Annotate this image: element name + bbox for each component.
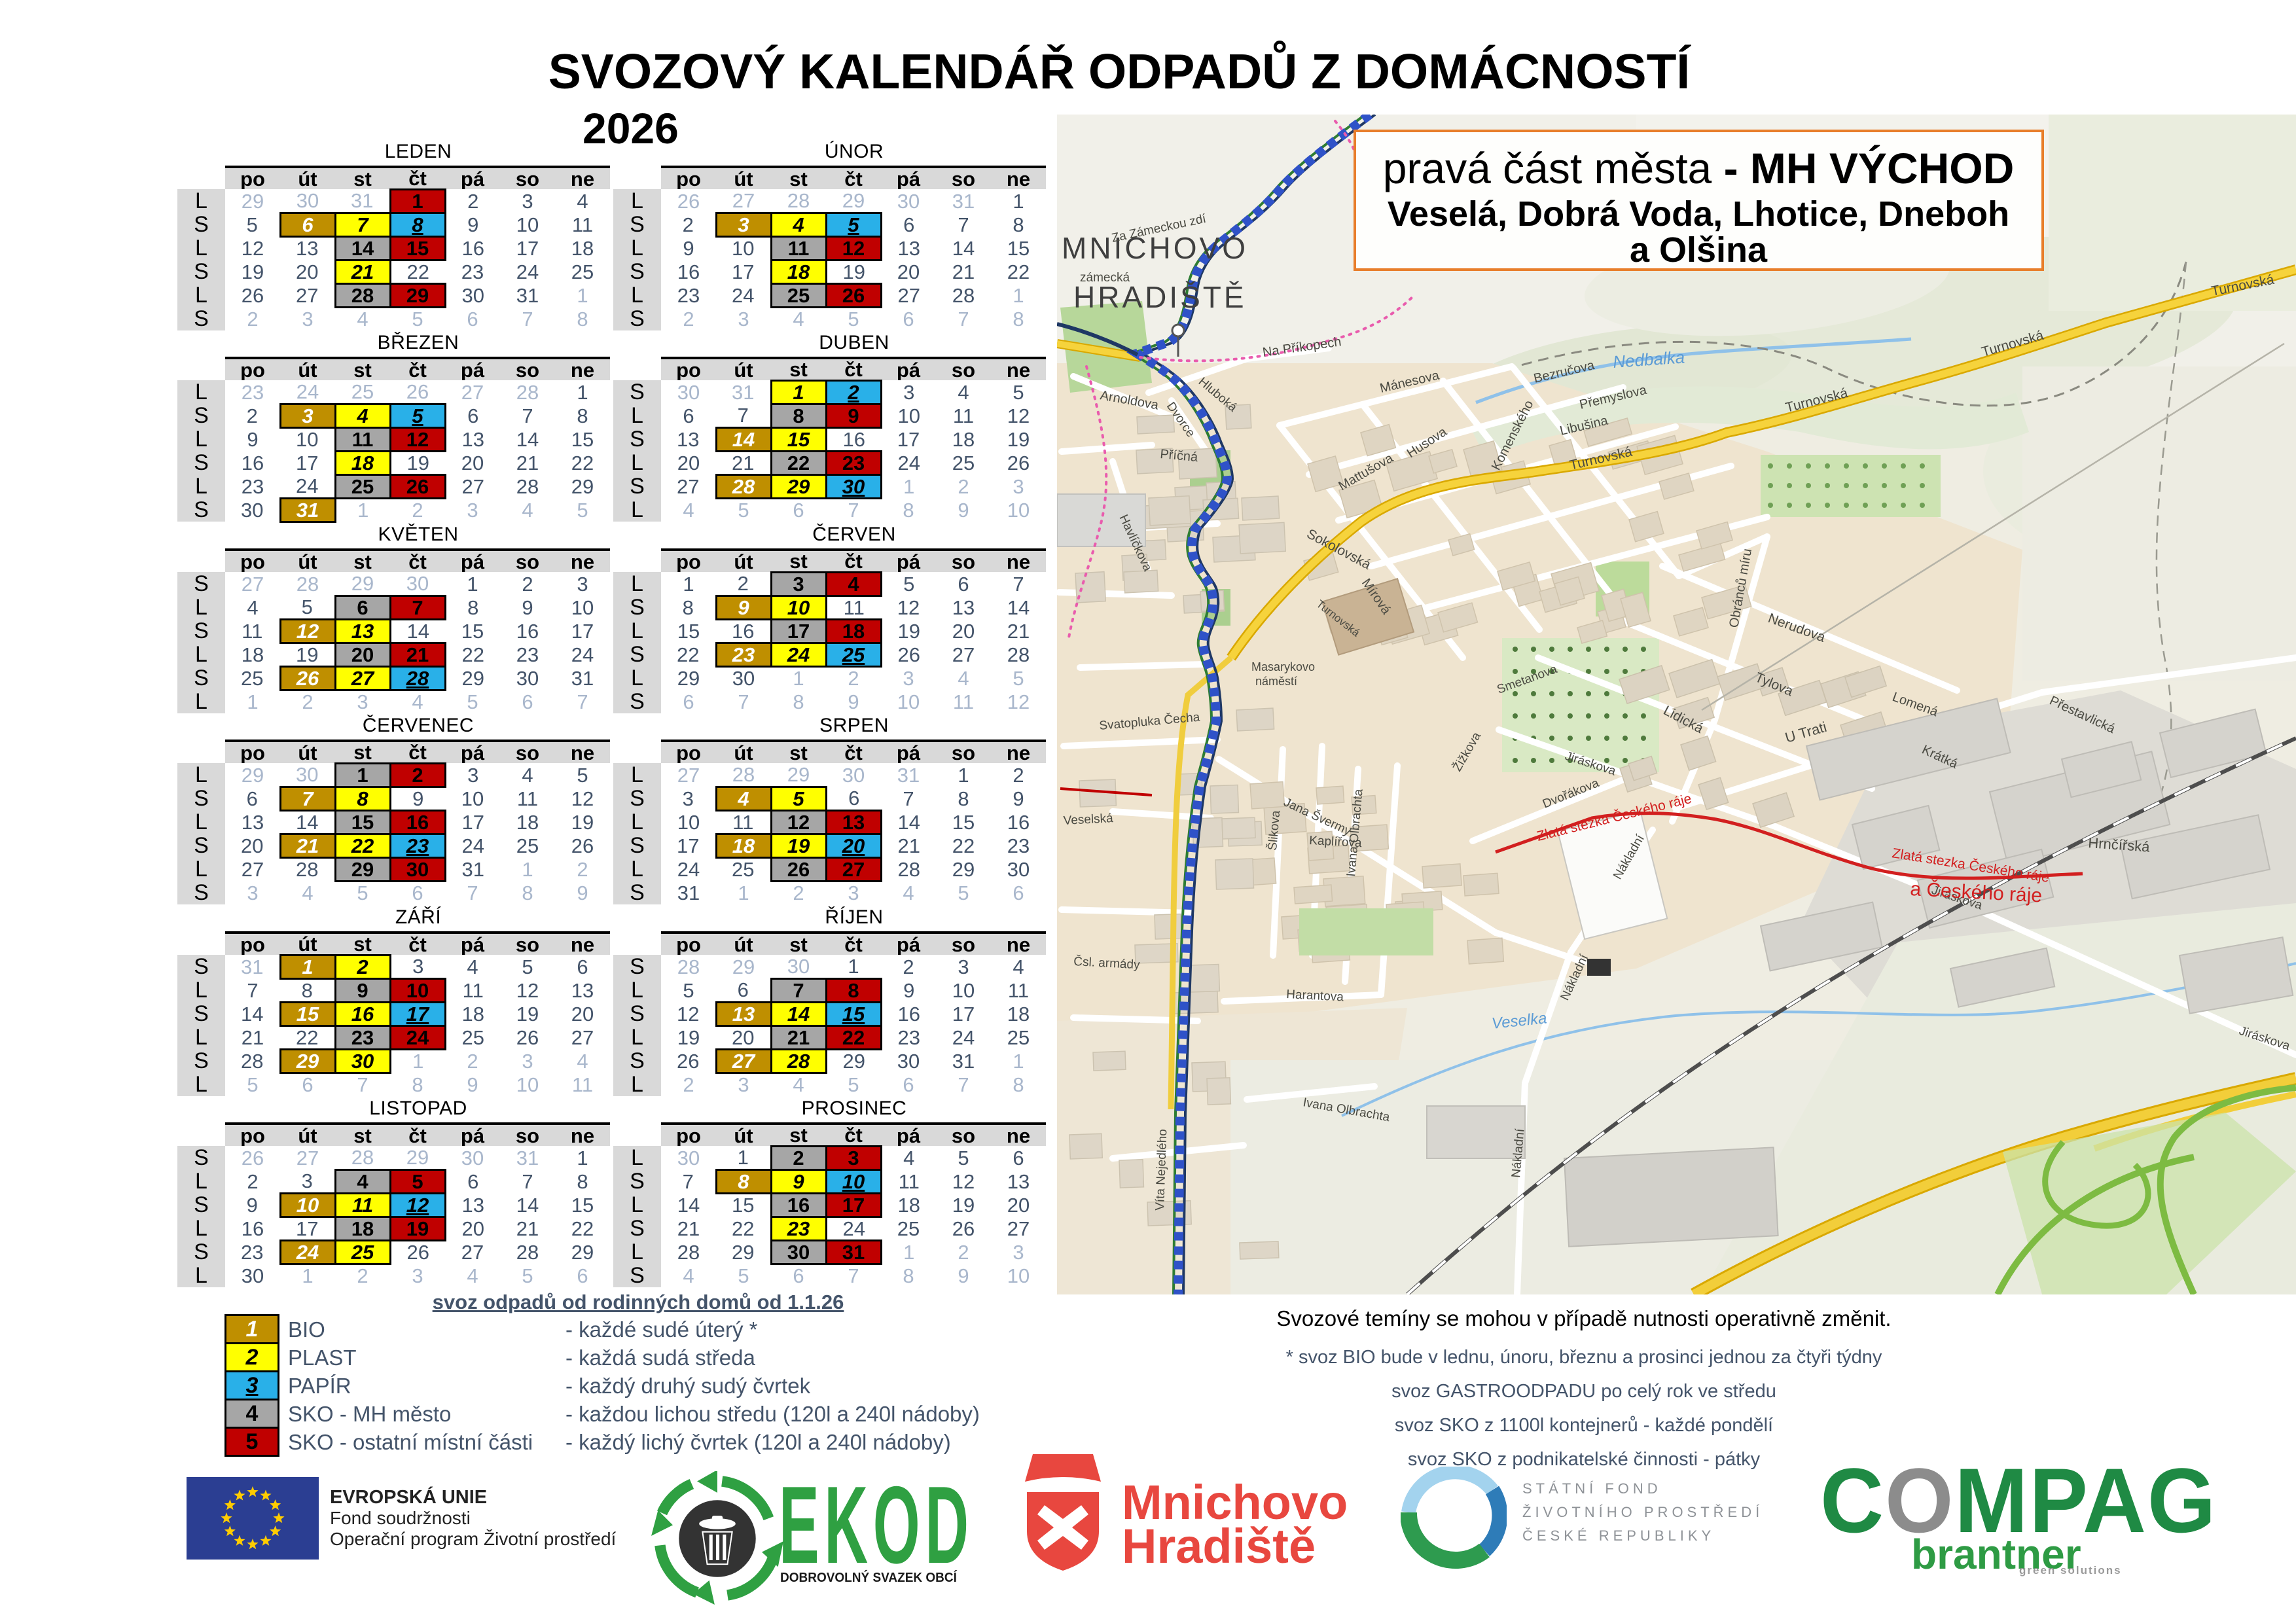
svg-text:Víta Nejedlého: Víta Nejedlého xyxy=(1153,1129,1170,1211)
svg-text:pravá část města - MH VÝCHOD: pravá část města - MH VÝCHOD xyxy=(1383,144,2015,192)
svg-text:Veselská: Veselská xyxy=(1063,811,1113,828)
svg-text:Veselá, Dobrá Voda, Lhotice, D: Veselá, Dobrá Voda, Lhotice, Dneboh xyxy=(1388,194,2009,234)
svg-text:a Olšina: a Olšina xyxy=(1630,230,1768,270)
svg-text:Kaplířova: Kaplířova xyxy=(1309,834,1363,850)
svg-text:zámecká: zámecká xyxy=(1080,271,1130,285)
svg-text:náměstí: náměstí xyxy=(1255,675,1297,688)
svg-text:Masarykovo: Masarykovo xyxy=(1251,660,1315,673)
svg-text:HRADIŠTĚ: HRADIŠTĚ xyxy=(1073,280,1247,314)
